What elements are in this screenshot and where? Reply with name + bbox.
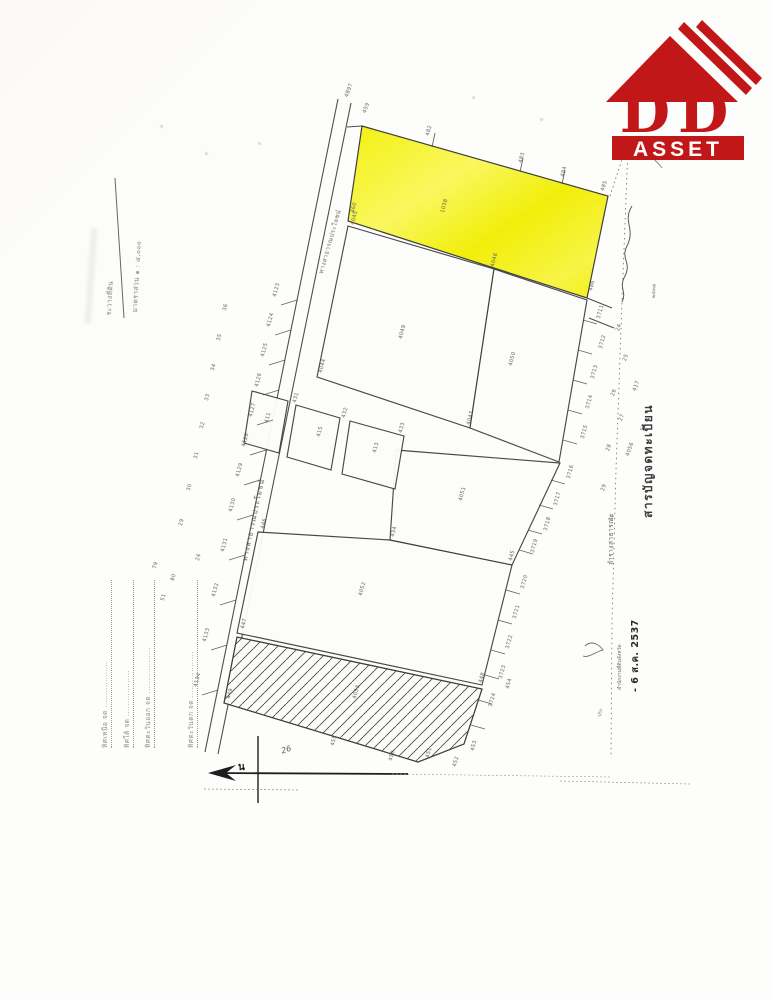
- logo-asset-text: ASSET: [633, 138, 723, 160]
- right-boundary-tick: [573, 380, 587, 384]
- right-boundary-tick: [563, 440, 577, 444]
- right-boundary-tick: [471, 725, 485, 729]
- scan-speck: [160, 125, 163, 128]
- top-boundary-tick: [432, 133, 435, 147]
- road-boundary-tick: [250, 450, 266, 455]
- signature-squiggle-2: [583, 643, 603, 656]
- right-boundary-tick: [506, 590, 520, 594]
- road-boundary-tick: [211, 645, 227, 650]
- right-boundary-tick: [491, 650, 505, 654]
- dd-asset-logo: DD ASSET www.ddasset.co.th: [590, 20, 772, 160]
- road-boundary-tick: [263, 390, 279, 395]
- margin-boundary-line: ทิศตะวันตก จด ..................: [186, 580, 198, 748]
- registry-index-label: สารบัญจดทะเบียน: [639, 404, 658, 518]
- road-boundary-tick: [269, 360, 285, 365]
- north-arrow-underline: [204, 789, 300, 790]
- faint-baseline-2: [560, 781, 690, 784]
- road-parcel-connector: [347, 126, 362, 127]
- right-boundary-tick: [528, 530, 542, 534]
- stamp-year-note: ๒๕๓๗: [650, 284, 658, 299]
- road-boundary-tick: [281, 300, 297, 305]
- road-boundary-tick: [275, 330, 291, 335]
- road-boundary-tick: [220, 600, 236, 605]
- road-boundary-tick: [202, 690, 218, 695]
- margin-boundary-line: ทิศตะวันออก จด ..................: [143, 580, 155, 748]
- compass-north-letter: น: [238, 760, 245, 775]
- right-boundary-tick: [568, 410, 582, 414]
- faint-baseline-1: [392, 774, 612, 777]
- survey-sheet-label: ระวางที่ดิน: [104, 281, 116, 316]
- margin-boundary-line: ทิศเหนือ จด ..................: [100, 580, 112, 748]
- parcel-small-2: [287, 405, 340, 470]
- parcel-small-3: [342, 421, 404, 489]
- scan-speck: [540, 118, 543, 121]
- right-boundary-tick: [539, 505, 553, 509]
- right-boundary-tick: [498, 620, 512, 624]
- canal-label: ลำรางสาธารณะ: [606, 513, 616, 565]
- right-boundary-tick: [485, 675, 499, 679]
- stamp-office-label: สำนักงานที่ดินจังหวัด: [616, 644, 624, 690]
- right-boundary-tick: [551, 480, 565, 484]
- scan-speck: [205, 152, 208, 155]
- right-boundary-tick: [578, 350, 592, 354]
- logo-dd-text: DD: [620, 78, 737, 146]
- scanned-deed-page: 4123412441254126412741284129413041314132…: [0, 0, 772, 1000]
- stamp-date: - 6 ส.ค. 2537: [628, 619, 643, 692]
- scan-speck: [258, 142, 261, 145]
- scan-speck: [472, 96, 475, 99]
- margin-note: ประ: [596, 708, 605, 718]
- title-block-rule: [115, 178, 124, 318]
- margin-boundary-line: ทิศใต้ จด ..................: [122, 580, 134, 748]
